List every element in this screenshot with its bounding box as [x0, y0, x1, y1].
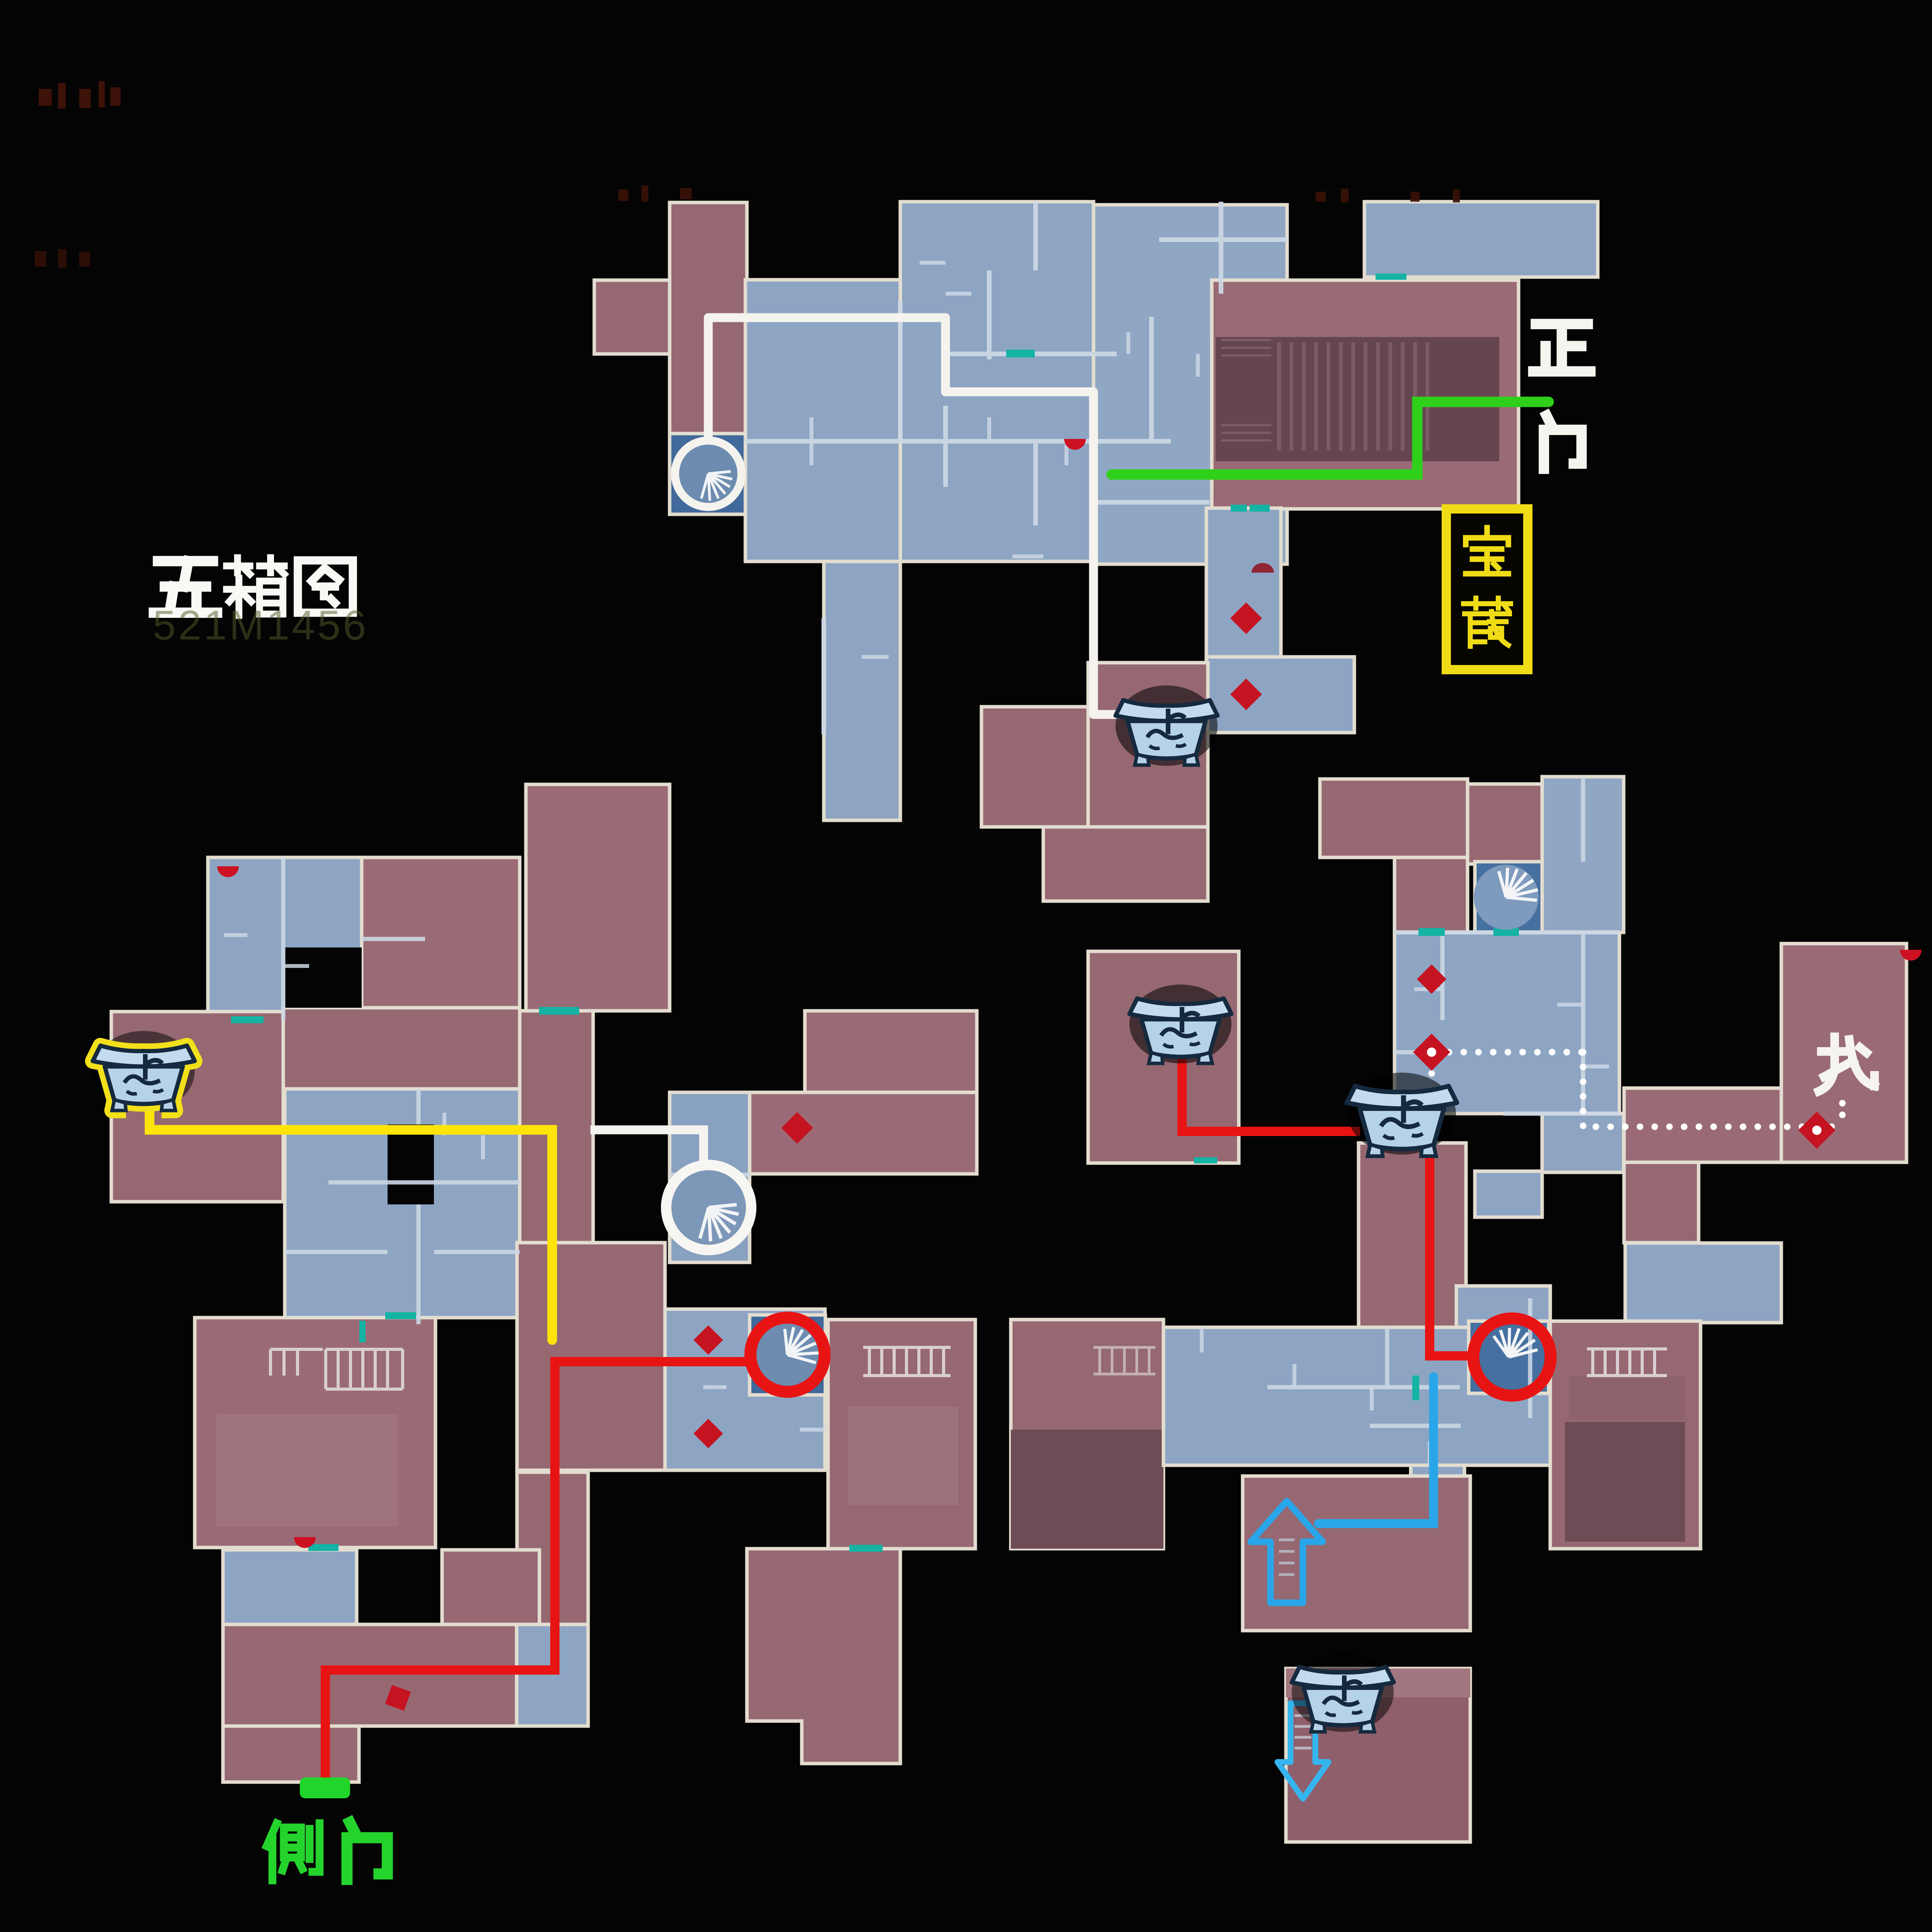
svg-text:521M1456: 521M1456: [153, 602, 368, 648]
